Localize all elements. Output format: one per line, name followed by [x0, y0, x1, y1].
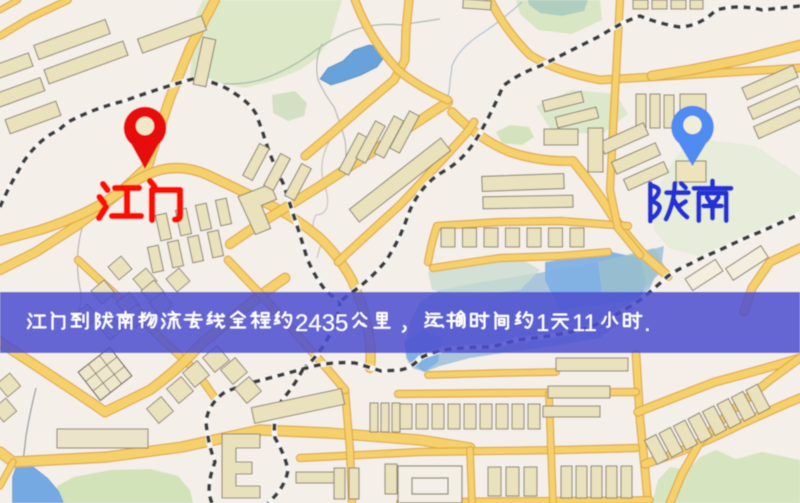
svg-text:2435: 2435: [295, 310, 348, 337]
svg-text:11: 11: [572, 310, 597, 337]
svg-text:.: .: [644, 310, 651, 337]
svg-text:1: 1: [536, 310, 549, 337]
